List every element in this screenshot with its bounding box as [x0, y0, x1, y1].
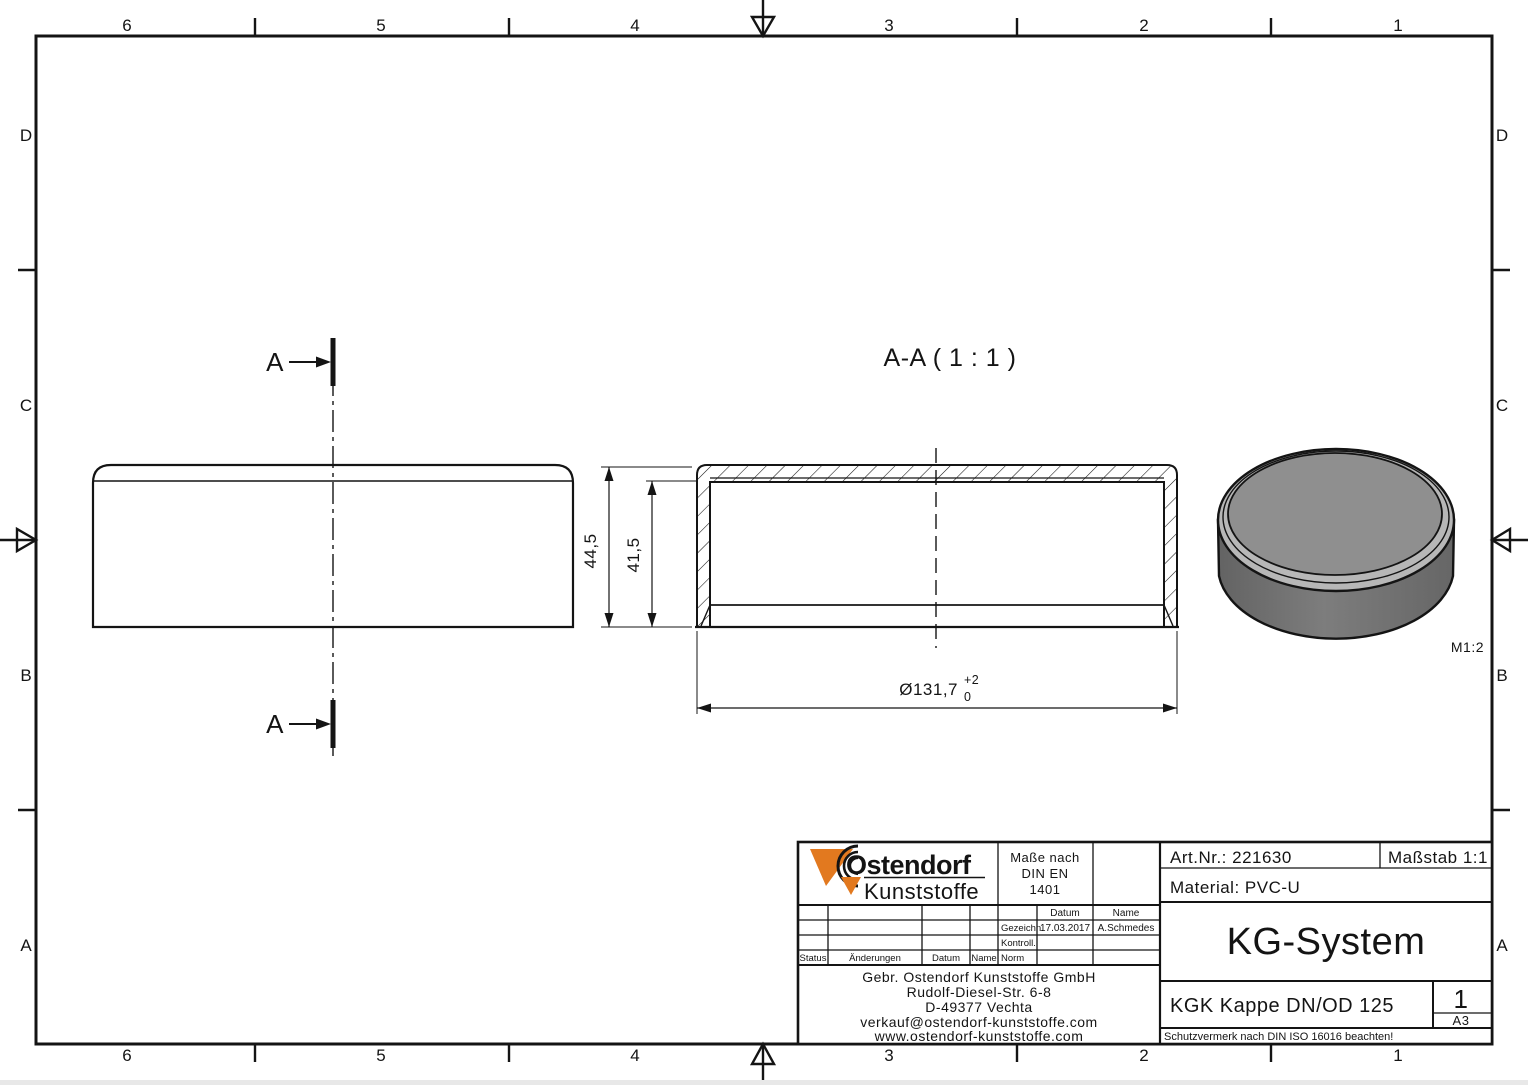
zone-col-label: 5 — [376, 16, 385, 35]
zone-row-label: C — [1496, 396, 1508, 415]
cut-arrow-label-top: A — [266, 347, 284, 377]
rev-drawn-label: Gezeichn. — [1001, 923, 1044, 934]
spec-note-line2: DIN EN — [1021, 866, 1068, 881]
drawing-sheet: 6 5 4 3 2 1 6 5 4 3 2 1 D C B A D C B A — [0, 0, 1528, 1080]
zone-row-label: A — [20, 936, 32, 955]
zone-col-label: 6 — [122, 16, 131, 35]
rev-col-date: Datum — [932, 953, 960, 964]
logo-wordmark: Ostendorf — [846, 850, 972, 880]
title-block: Ostendorf Kunststoffe Maße nach DIN EN 1… — [798, 842, 1492, 1044]
sheet-number: 1 — [1454, 984, 1469, 1014]
rev-col-status: Status — [800, 953, 827, 964]
scale-field: Maßstab 1:1 — [1388, 848, 1488, 867]
iso-view: M1:2 — [1218, 449, 1484, 655]
logo-subtitle: Kunststoffe — [864, 879, 979, 904]
technical-drawing-canvas: 6 5 4 3 2 1 6 5 4 3 2 1 D C B A D C B A — [0, 0, 1528, 1080]
address-line: Rudolf-Diesel-Str. 6-8 — [907, 984, 1052, 1000]
rev-drawn-name: A.Schmedes — [1098, 923, 1155, 934]
rev-drawn-date: 17.03.2017 — [1040, 923, 1090, 934]
cut-arrow-label-bottom: A — [266, 709, 284, 739]
zone-col-label: 2 — [1139, 1046, 1148, 1065]
dim-tolerance-upper: +2 — [964, 673, 979, 687]
zone-col-label: 4 — [630, 16, 639, 35]
zone-col-label: 4 — [630, 1046, 639, 1065]
rev-checked-label: Kontroll. — [1001, 938, 1036, 949]
spec-note-line3: 1401 — [1030, 882, 1061, 897]
zone-col-label: 5 — [376, 1046, 385, 1065]
zone-row-label: D — [20, 126, 32, 145]
section-view: A-A ( 1 : 1 ) — [695, 344, 1179, 648]
dimensions: 44,5 41,5 Ø131,7 +2 0 — [581, 467, 1177, 714]
dim-tolerance-lower: 0 — [964, 690, 971, 704]
rev-norm-label: Norm — [1001, 953, 1024, 964]
rev-head-date: Datum — [1050, 908, 1079, 919]
iso-scale-label: M1:2 — [1451, 639, 1484, 655]
address-line: Gebr. Ostendorf Kunststoffe GmbH — [862, 969, 1096, 985]
zone-col-label: 3 — [884, 16, 893, 35]
rev-col-name: Name — [971, 953, 996, 964]
section-view-title: A-A ( 1 : 1 ) — [884, 344, 1017, 372]
rev-head-name: Name — [1113, 908, 1140, 919]
rev-col-changes: Änderungen — [849, 953, 901, 964]
zone-col-label: 3 — [884, 1046, 893, 1065]
article-number: Art.Nr.: 221630 — [1170, 848, 1292, 867]
dim-diameter: Ø131,7 — [899, 680, 958, 699]
zone-col-label: 2 — [1139, 16, 1148, 35]
zone-col-label: 1 — [1393, 1046, 1402, 1065]
address-line: D-49377 Vechta — [925, 999, 1032, 1015]
zone-row-label: B — [1496, 666, 1507, 685]
system-title: KG-System — [1227, 921, 1426, 963]
zone-row-label: B — [20, 666, 31, 685]
spec-note-line1: Maße nach — [1010, 850, 1080, 865]
material-field: Material: PVC-U — [1170, 878, 1300, 897]
zone-row-label: C — [20, 396, 32, 415]
protection-note: Schutzvermerk nach DIN ISO 16016 beachte… — [1164, 1031, 1393, 1043]
zone-col-label: 6 — [122, 1046, 131, 1065]
dim-height-outer: 44,5 — [581, 533, 600, 568]
dim-height-inner: 41,5 — [624, 537, 643, 572]
zone-row-label: A — [1496, 936, 1508, 955]
address-line: www.ostendorf-kunststoffe.com — [874, 1028, 1084, 1044]
paper-format: A3 — [1453, 1013, 1470, 1028]
zone-row-label: D — [1496, 126, 1508, 145]
part-name: KGK Kappe DN/OD 125 — [1170, 995, 1394, 1017]
zone-col-label: 1 — [1393, 16, 1402, 35]
